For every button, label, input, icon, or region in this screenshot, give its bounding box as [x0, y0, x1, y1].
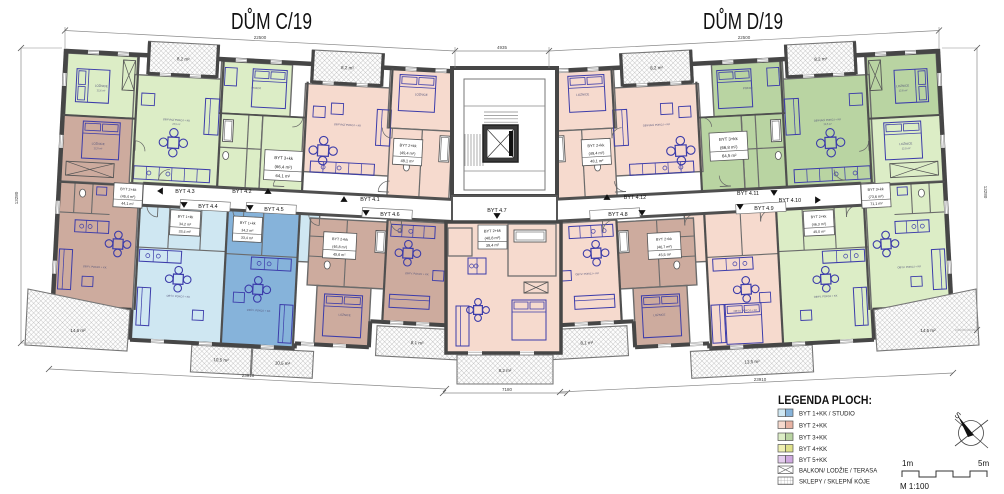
- svg-text:23,5 m²: 23,5 m²: [172, 123, 180, 126]
- svg-text:64,1 m²: 64,1 m²: [275, 173, 290, 179]
- svg-text:BYT 4.6: BYT 4.6: [380, 212, 399, 218]
- svg-text:BYT 4.3: BYT 4.3: [175, 189, 194, 195]
- svg-text:BYT 2+kk: BYT 2+kk: [656, 237, 672, 242]
- svg-text:LOŽNICE: LOŽNICE: [338, 312, 351, 318]
- svg-text:BYT 3+kk: BYT 3+kk: [274, 155, 294, 161]
- svg-text:8,2 m²: 8,2 m²: [177, 56, 190, 62]
- svg-text:13280: 13280: [983, 186, 988, 199]
- svg-text:(49,4 m²): (49,4 m²): [588, 150, 605, 156]
- svg-text:BALKON/ LODŽIE / TERASA: BALKON/ LODŽIE / TERASA: [799, 466, 877, 474]
- svg-text:12,6 m²: 12,6 m²: [899, 88, 908, 92]
- svg-text:BYT 4.7: BYT 4.7: [487, 208, 506, 214]
- svg-text:BYT 4.8: BYT 4.8: [608, 212, 627, 218]
- svg-text:BYT 4.12: BYT 4.12: [624, 195, 646, 201]
- svg-text:8,2 m²: 8,2 m²: [814, 56, 827, 62]
- svg-text:DŮM C/19: DŮM C/19: [231, 6, 312, 34]
- svg-text:LEGENDA PLOCH:: LEGENDA PLOCH:: [778, 393, 872, 407]
- svg-text:39,4 m²: 39,4 m²: [486, 242, 500, 248]
- svg-text:23910: 23910: [242, 373, 255, 378]
- svg-text:48,1 m²: 48,1 m²: [400, 158, 414, 164]
- svg-text:(45,4 m²): (45,4 m²): [120, 194, 135, 199]
- svg-text:LOŽNICE: LOŽNICE: [653, 312, 666, 318]
- svg-text:DŮM D/19: DŮM D/19: [703, 6, 783, 34]
- svg-text:(73,6 m²): (73,6 m²): [868, 194, 883, 199]
- svg-text:10,5 m²: 10,5 m²: [275, 360, 291, 366]
- svg-text:8,1 m²: 8,1 m²: [580, 340, 593, 346]
- svg-text:64,5 m²: 64,5 m²: [722, 153, 737, 159]
- svg-text:45,0 m²: 45,0 m²: [813, 229, 826, 234]
- svg-text:(66,8 m²): (66,8 m²): [720, 144, 738, 150]
- svg-text:(46,3 m²): (46,3 m²): [812, 222, 827, 227]
- svg-text:71,1 m²: 71,1 m²: [870, 202, 883, 207]
- svg-text:BYT 3+KK: BYT 3+KK: [799, 435, 827, 441]
- svg-text:POKOJ: POKOJ: [252, 86, 262, 91]
- svg-text:12,0 m²: 12,0 m²: [902, 146, 911, 150]
- svg-text:LOŽNICE: LOŽNICE: [95, 83, 108, 89]
- svg-text:BYT 4.10: BYT 4.10: [779, 198, 801, 204]
- svg-text:7180: 7180: [502, 387, 513, 392]
- svg-text:BYT 2+kk: BYT 2+kk: [400, 142, 417, 148]
- svg-text:23910: 23910: [754, 377, 767, 382]
- svg-text:BYT 5+KK: BYT 5+KK: [799, 458, 827, 464]
- svg-text:BYT 2+kk: BYT 2+kk: [587, 142, 604, 148]
- svg-text:LOŽNICE: LOŽNICE: [899, 140, 912, 146]
- svg-text:1m: 1m: [902, 459, 913, 468]
- svg-text:BYT 4.11: BYT 4.11: [737, 191, 759, 197]
- svg-text:BYT 2+KK: BYT 2+KK: [799, 423, 827, 429]
- svg-text:LOŽNICE: LOŽNICE: [415, 91, 428, 97]
- svg-text:BYT 2+kk: BYT 2+kk: [120, 187, 136, 192]
- svg-text:23,5 m²: 23,5 m²: [824, 123, 832, 126]
- svg-text:BYT 2+kk: BYT 2+kk: [811, 214, 827, 219]
- svg-text:BYT 1+kk: BYT 1+kk: [240, 221, 256, 226]
- svg-text:BYT 4+KK: BYT 4+KK: [799, 447, 827, 453]
- svg-text:34,2 m²: 34,2 m²: [241, 228, 254, 233]
- svg-text:LOŽNICE: LOŽNICE: [896, 83, 909, 89]
- svg-text:POKOJ: POKOJ: [743, 86, 753, 91]
- svg-text:BYT 4.5: BYT 4.5: [264, 207, 283, 213]
- svg-text:22500: 22500: [254, 35, 267, 40]
- svg-text:BYT 4.4: BYT 4.4: [198, 204, 217, 210]
- svg-text:8,2 m²: 8,2 m²: [499, 368, 512, 373]
- svg-text:22500: 22500: [738, 35, 751, 40]
- svg-text:BYT 2+kk: BYT 2+kk: [332, 237, 348, 242]
- svg-text:(49,4 m²): (49,4 m²): [400, 150, 417, 156]
- svg-text:BYT 4.1: BYT 4.1: [360, 197, 379, 203]
- svg-text:LOŽNICE: LOŽNICE: [576, 91, 589, 97]
- svg-text:14,5 m²: 14,5 m²: [920, 328, 936, 333]
- svg-text:12,0 m²: 12,0 m²: [93, 146, 102, 150]
- svg-text:8,2 m²: 8,2 m²: [650, 65, 663, 71]
- svg-text:(66,4 m²): (66,4 m²): [274, 164, 292, 170]
- svg-text:(46,7 m²): (46,7 m²): [657, 245, 672, 250]
- svg-text:BYT 3+kk: BYT 3+kk: [868, 187, 884, 192]
- svg-text:13,5 m²: 13,5 m²: [744, 359, 760, 365]
- svg-text:BYT 2+kk: BYT 2+kk: [484, 228, 501, 234]
- svg-text:5m: 5m: [978, 459, 989, 468]
- svg-text:10,5 m²: 10,5 m²: [213, 357, 229, 363]
- svg-text:(46,8 m²): (46,8 m²): [332, 245, 347, 250]
- svg-text:M 1:100: M 1:100: [900, 482, 929, 491]
- svg-text:8,2 m²: 8,2 m²: [341, 65, 354, 71]
- svg-text:44,1 m²: 44,1 m²: [121, 202, 134, 207]
- svg-text:BYT 3+kk: BYT 3+kk: [719, 136, 739, 142]
- svg-text:BYT 1+kk: BYT 1+kk: [178, 214, 194, 219]
- svg-text:14,6 m²: 14,6 m²: [70, 328, 86, 333]
- svg-text:LOŽNICE: LOŽNICE: [92, 140, 105, 146]
- svg-text:12,6 m²: 12,6 m²: [96, 88, 105, 92]
- svg-text:4935: 4935: [497, 45, 508, 50]
- svg-text:(40,8 m²): (40,8 m²): [484, 235, 501, 241]
- svg-text:BYT 4.2: BYT 4.2: [232, 189, 251, 195]
- svg-text:SKLEPY / SKLEPNÍ KÓJE: SKLEPY / SKLEPNÍ KÓJE: [799, 478, 870, 485]
- svg-text:48,1 m²: 48,1 m²: [590, 158, 604, 164]
- svg-text:BYT 1+KK / STUDIO: BYT 1+KK / STUDIO: [799, 411, 855, 417]
- svg-text:BYT 4.9: BYT 4.9: [754, 206, 773, 212]
- svg-text:8,1 m²: 8,1 m²: [411, 340, 424, 346]
- svg-text:45,6 m²: 45,6 m²: [333, 253, 346, 258]
- svg-text:34,2 m²: 34,2 m²: [179, 222, 192, 227]
- svg-text:33,4 m²: 33,4 m²: [178, 229, 191, 234]
- svg-text:45,5 m²: 45,5 m²: [658, 253, 671, 258]
- svg-text:33,4 m²: 33,4 m²: [241, 236, 254, 241]
- svg-text:13280: 13280: [14, 191, 19, 204]
